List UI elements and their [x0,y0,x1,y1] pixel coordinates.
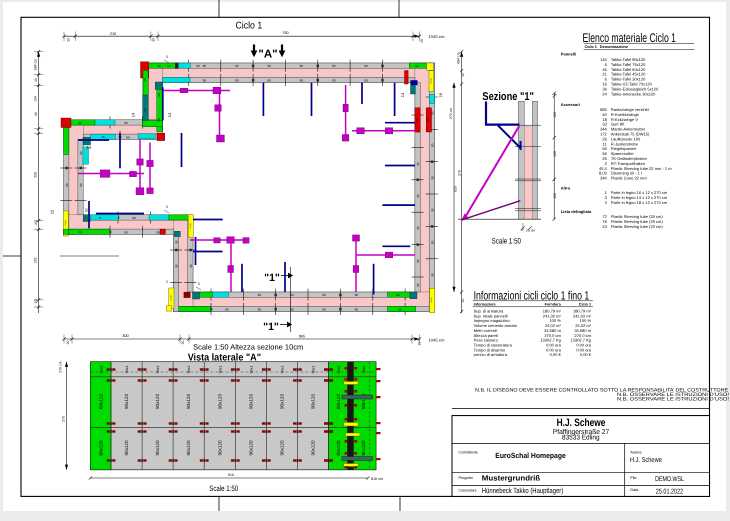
svg-text:60x1: 60x1 [362,366,366,374]
svg-text:90: 90 [258,308,262,312]
svg-text:90: 90 [300,79,304,83]
svg-text:90x120: 90x120 [311,394,316,410]
svg-text:255: 255 [34,172,38,178]
svg-text:0,00 €: 0,00 € [580,352,592,357]
svg-text:15: 15 [87,145,92,150]
svg-text:25: 25 [34,221,38,225]
svg-text:90: 90 [430,143,434,147]
svg-text:90: 90 [203,79,207,83]
svg-text:60x120: 60x120 [361,440,366,456]
svg-text:Ausgl: Ausgl [189,223,192,229]
svg-text:90: 90 [332,64,336,68]
svg-text:270: 270 [457,170,461,176]
svg-text:14: 14 [167,112,172,117]
svg-text:90: 90 [124,230,128,234]
svg-text:60: 60 [157,64,161,68]
svg-text:Committente: Committente [459,450,478,454]
svg-text:1045 cm: 1045 cm [428,338,445,343]
svg-text:90: 90 [430,240,434,244]
svg-text:H.J. Schewe: H.J. Schewe [557,417,606,429]
svg-text:14: 14 [400,92,405,97]
svg-text:H.J. Schewe: H.J. Schewe [630,456,662,464]
svg-text:83533 Edling: 83533 Edling [562,433,600,441]
svg-text:Ausgl: Ausgl [64,220,67,226]
svg-text:865: 865 [299,335,305,339]
svg-text:3: 3 [554,93,558,95]
svg-text:90: 90 [430,273,434,277]
svg-text:120: 120 [553,193,557,199]
svg-text:Informazioni cicli ciclo 1 fi: Informazioni cicli ciclo 1 fino 1 [474,288,590,302]
svg-text:N.B. OSSERVARE LE ISTRUZIONI D: N.B. OSSERVARE LE ISTRUZIONI D’USO! [617,396,729,402]
svg-text:Casseratura: Casseratura [459,489,478,493]
svg-text:Autore: Autore [630,451,641,455]
svg-text:5: 5 [166,55,168,59]
svg-text:20: 20 [34,300,38,304]
svg-text:20: 20 [66,341,70,345]
svg-text:Mustergrundriß: Mustergrundriß [482,473,541,482]
svg-text:60x1: 60x1 [99,366,103,374]
svg-text:90: 90 [267,64,271,68]
svg-text:Denominazione: Denominazione [600,45,628,49]
svg-text:90: 90 [189,264,193,268]
svg-text:270: 270 [62,416,66,422]
svg-text:90: 90 [85,208,89,212]
svg-text:270 cm: 270 cm [59,361,63,373]
svg-text:Hünnebeck Takko (Hauptlager): Hünnebeck Takko (Hauptlager) [482,486,564,495]
svg-text:prezzo di armatura: prezzo di armatura [474,352,508,357]
svg-text:Scale 1:50 Altezza sezione 10: Scale 1:50 Altezza sezione 10cm [193,343,303,352]
svg-text:Data: Data [630,488,639,492]
svg-text:60: 60 [157,118,161,122]
svg-text:25.01.2022: 25.01.2022 [656,488,683,495]
svg-text:90: 90 [235,64,239,68]
svg-text:5: 5 [166,280,168,284]
svg-text:EuroSchal Homepage: EuroSchal Homepage [495,451,566,460]
svg-text:Elenco materiale Ciclo 1: Elenco materiale Ciclo 1 [583,31,677,45]
svg-text:90x120: 90x120 [124,394,129,410]
svg-text:60: 60 [398,307,402,311]
svg-text:134: 134 [34,96,38,102]
svg-text:90x120: 90x120 [155,440,160,456]
svg-text:90x120: 90x120 [217,440,222,456]
svg-text:Fornitura: Fornitura [545,302,562,306]
svg-text:70: 70 [426,118,430,122]
svg-text:25: 25 [181,341,185,345]
svg-text:Informazioni: Informazioni [474,302,496,306]
svg-text:90: 90 [355,293,359,297]
svg-text:90: 90 [124,121,128,125]
svg-text:"1": "1" [263,321,279,333]
svg-text:Ciclo 1: Ciclo 1 [579,302,591,306]
svg-text:90: 90 [416,283,420,287]
svg-text:90: 90 [203,64,207,68]
svg-text:Plastic Sleeving tube (20 cm): Plastic Sleeving tube (20 cm) [611,224,663,229]
svg-text:Ciclo 1: Ciclo 1 [584,45,596,49]
svg-text:File: File [630,476,636,480]
svg-text:60: 60 [78,230,82,234]
svg-text:5: 5 [166,205,168,209]
svg-text:60: 60 [167,64,171,68]
svg-text:0,00 €: 0,00 € [550,352,562,357]
svg-text:60: 60 [396,293,400,297]
svg-text:90: 90 [355,308,359,312]
svg-text:Progetto: Progetto [459,476,473,480]
svg-text:90: 90 [175,240,179,244]
svg-text:Takko-Innenecke 30x120: Takko-Innenecke 30x120 [611,91,656,96]
svg-text:45: 45 [101,135,105,139]
svg-text:90x120: 90x120 [248,440,253,456]
svg-text:90x120: 90x120 [186,440,191,456]
svg-text:90: 90 [196,64,200,68]
svg-text:24: 24 [602,224,607,229]
svg-text:30: 30 [34,78,38,82]
svg-text:684 cm: 684 cm [457,52,461,64]
svg-text:60: 60 [157,93,161,97]
svg-text:90: 90 [79,183,83,187]
svg-text:"1": "1" [264,272,280,284]
svg-text:Scale 1:50: Scale 1:50 [492,236,522,245]
svg-text:90: 90 [267,79,271,83]
svg-text:DEMO.WSL: DEMO.WSL [655,476,684,483]
svg-text:90x120: 90x120 [186,394,191,410]
svg-text:810: 810 [228,473,234,477]
svg-text:90: 90 [175,264,179,268]
svg-text:90: 90 [332,79,336,83]
svg-text:120: 120 [553,151,557,157]
svg-text:60: 60 [143,78,147,82]
svg-text:30: 30 [418,342,422,346]
svg-text:120: 120 [553,112,557,118]
svg-text:26: 26 [34,112,38,116]
svg-text:5: 5 [198,282,200,286]
svg-text:60: 60 [415,64,419,68]
svg-text:90: 90 [416,162,420,166]
svg-text:90: 90 [430,208,434,212]
svg-text:90: 90 [416,194,420,198]
svg-text:684 cm: 684 cm [34,59,38,71]
svg-text:90: 90 [156,230,160,234]
svg-text:60x1: 60x1 [337,366,341,374]
svg-text:Ausgl: Ausgl [430,297,433,303]
svg-text:45: 45 [98,216,102,220]
svg-text:24: 24 [602,91,607,96]
svg-text:Lista dettagliata: Lista dettagliata [561,209,592,214]
svg-text:270 cm: 270 cm [449,108,453,120]
svg-text:90: 90 [416,259,420,263]
svg-text:90x1: 90x1 [218,366,222,374]
svg-text:30: 30 [461,73,465,77]
svg-text:60x120: 60x120 [98,440,103,456]
svg-text:Ciclo 1: Ciclo 1 [236,21,263,32]
svg-text:60x120: 60x120 [336,440,341,456]
svg-text:90x1: 90x1 [125,366,129,374]
svg-text:60: 60 [143,108,147,112]
svg-text:30: 30 [420,39,424,43]
svg-text:60: 60 [78,121,82,125]
svg-text:90: 90 [364,64,368,68]
svg-text:Sezione "1": Sezione "1" [482,91,534,103]
svg-text:1045 cm: 1045 cm [428,34,445,39]
svg-text:70: 70 [415,118,419,122]
svg-text:90x120: 90x120 [124,440,129,456]
svg-text:90x1: 90x1 [249,366,253,374]
svg-text:Altro: Altro [561,185,571,190]
svg-text:20: 20 [152,38,156,42]
svg-text:Ausgl: Ausgl [169,295,172,301]
svg-text:90x1: 90x1 [187,366,191,374]
svg-text:20: 20 [67,38,71,42]
svg-text:90: 90 [126,135,130,139]
svg-text:629: 629 [453,186,457,192]
svg-text:90x1: 90x1 [281,366,285,374]
svg-text:90: 90 [132,216,136,220]
svg-text:344: 344 [600,176,607,181]
svg-text:15: 15 [50,209,55,214]
svg-text:16: 16 [438,92,443,97]
svg-text:"A": "A" [258,49,277,61]
svg-text:60x120: 60x120 [98,394,103,410]
svg-text:Pannelli: Pannelli [561,51,576,56]
svg-text:195: 195 [34,258,38,264]
svg-text:90: 90 [322,308,326,312]
svg-text:90: 90 [300,64,304,68]
svg-text:14: 14 [131,112,136,117]
svg-text:90: 90 [322,293,326,297]
svg-text:Accessori: Accessori [561,102,580,107]
svg-text:Plastic Cone 22 mm: Plastic Cone 22 mm [611,176,647,181]
svg-text:Ausgl: Ausgl [430,78,433,84]
svg-text:90: 90 [65,183,69,187]
svg-text:90: 90 [79,151,83,155]
svg-text:90x120: 90x120 [155,394,160,410]
svg-text:90: 90 [258,293,262,297]
svg-text:90: 90 [430,176,434,180]
svg-text:25 cm: 25 cm [526,229,535,233]
svg-text:60x120: 60x120 [336,394,341,410]
svg-text:90x120: 90x120 [248,394,253,410]
svg-text:90: 90 [416,226,420,230]
svg-text:Scale 1:50: Scale 1:50 [209,484,238,493]
svg-text:90x120: 90x120 [280,394,285,410]
svg-text:90: 90 [235,79,239,83]
svg-text:760: 760 [282,31,288,35]
svg-text:90: 90 [364,79,368,83]
svg-text:25: 25 [461,299,465,303]
svg-text:90x120: 90x120 [280,440,285,456]
svg-text:810 cm: 810 cm [371,477,383,481]
svg-text:90x120: 90x120 [311,440,316,456]
svg-text:210: 210 [110,32,116,36]
svg-text:90x1: 90x1 [312,366,316,374]
svg-text:Parte in legno 18 x 12 x 270 c: Parte in legno 18 x 12 x 270 cm [611,200,668,205]
svg-text:90: 90 [225,308,229,312]
svg-text:90x1: 90x1 [156,366,160,374]
svg-text:90x120: 90x120 [217,394,222,410]
svg-text:300: 300 [122,334,128,338]
